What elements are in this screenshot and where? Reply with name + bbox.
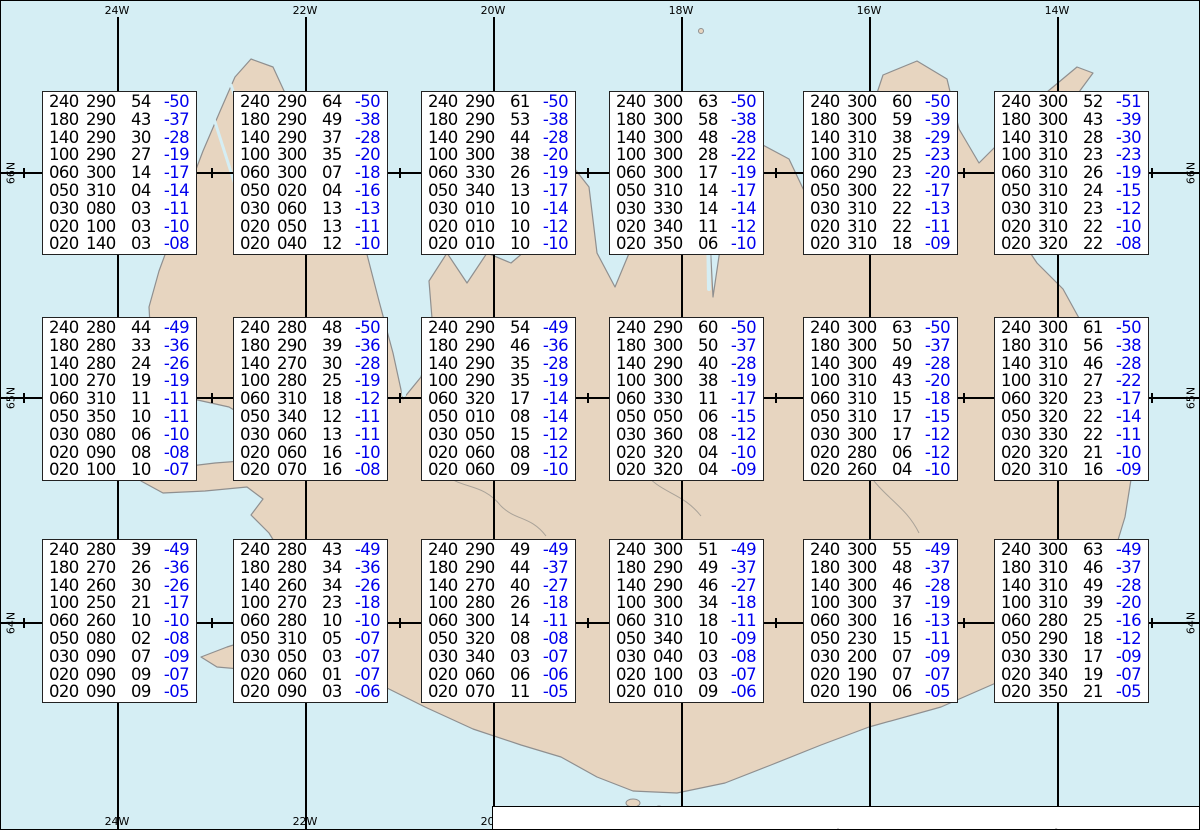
wind-speed-cell: 35 — [510, 372, 541, 389]
wind-speed-cell: 02 — [131, 630, 162, 647]
spot-row: 06028010-10 — [240, 612, 380, 629]
wind-speed-cell: 21 — [1083, 683, 1114, 700]
wind-speed-cell: 17 — [892, 408, 923, 425]
spot-row: 06032017-14 — [428, 390, 568, 407]
wind-speed-cell: 56 — [1083, 337, 1114, 354]
temperature-cell: -12 — [729, 218, 756, 235]
flight-level-cell: 140 — [240, 355, 277, 372]
wind-direction-cell: 100 — [653, 666, 698, 683]
wind-speed-cell: 38 — [510, 146, 541, 163]
wind-speed-cell: 38 — [698, 372, 729, 389]
wind-direction-cell: 290 — [465, 93, 510, 110]
temperature-cell: -38 — [353, 111, 380, 128]
wind-direction-cell: 290 — [653, 559, 698, 576]
flight-level-cell: 060 — [810, 164, 847, 181]
spot-row: 02010010-07 — [49, 461, 189, 478]
wind-speed-cell: 23 — [1083, 390, 1114, 407]
flight-level-cell: 020 — [616, 683, 653, 700]
wind-direction-cell: 300 — [653, 541, 698, 558]
wind-speed-cell: 23 — [322, 594, 353, 611]
spot-row: 14030046-28 — [810, 577, 950, 594]
spot-row: 03005003-07 — [240, 648, 380, 665]
wind-speed-cell: 04 — [698, 444, 729, 461]
flight-level-cell: 180 — [240, 559, 277, 576]
flight-level-cell: 140 — [49, 577, 86, 594]
spot-row: 02019007-07 — [810, 666, 950, 683]
spot-row: 18030050-37 — [616, 337, 756, 354]
wind-direction-cell: 280 — [277, 372, 322, 389]
temperature-cell: -17 — [729, 390, 756, 407]
flight-level-cell: 140 — [616, 577, 653, 594]
temperature-cell: -28 — [353, 355, 380, 372]
spot-row: 24030063-50 — [616, 93, 756, 110]
wind-direction-cell: 080 — [86, 630, 131, 647]
wind-speed-cell: 06 — [698, 408, 729, 425]
spot-row: 02026004-10 — [810, 461, 950, 478]
flight-level-cell: 020 — [428, 666, 465, 683]
temperature-cell: -38 — [729, 111, 756, 128]
temperature-cell: -28 — [162, 129, 189, 146]
spot-row: 24029054-50 — [49, 93, 189, 110]
wind-speed-cell: 46 — [892, 577, 923, 594]
spot-row: 24029064-50 — [240, 93, 380, 110]
temperature-cell: -18 — [353, 164, 380, 181]
temperature-cell: -11 — [162, 390, 189, 407]
spot-row: 03008003-11 — [49, 200, 189, 217]
temperature-cell: -19 — [1114, 164, 1141, 181]
flight-level-cell: 140 — [49, 129, 86, 146]
wind-speed-cell: 59 — [892, 111, 923, 128]
wind-speed-cell: 44 — [131, 319, 162, 336]
flight-level-cell: 240 — [1001, 319, 1038, 336]
spot-row: 24030051-49 — [616, 541, 756, 558]
flight-level-cell: 100 — [810, 146, 847, 163]
wind-speed-cell: 11 — [510, 683, 541, 700]
temperature-cell: -10 — [353, 444, 380, 461]
spot-row: 18030043-39 — [1001, 111, 1141, 128]
wind-speed-cell: 14 — [698, 182, 729, 199]
wind-direction-cell: 060 — [277, 426, 322, 443]
flight-level-cell: 020 — [810, 444, 847, 461]
wind-speed-cell: 09 — [510, 461, 541, 478]
wind-speed-cell: 21 — [131, 594, 162, 611]
flight-level-cell: 180 — [810, 337, 847, 354]
temperature-cell: -09 — [923, 648, 950, 665]
temperature-cell: -19 — [162, 372, 189, 389]
wind-direction-cell: 060 — [465, 666, 510, 683]
spot-row: 14030048-28 — [616, 129, 756, 146]
spot-box: 24029060-5018030050-3714029040-281003003… — [609, 317, 764, 481]
spot-row: 24030061-50 — [1001, 319, 1141, 336]
wind-direction-cell: 330 — [653, 390, 698, 407]
temperature-cell: -11 — [353, 426, 380, 443]
wind-direction-cell: 010 — [465, 218, 510, 235]
wind-speed-cell: 37 — [322, 129, 353, 146]
temperature-cell: -10 — [162, 218, 189, 235]
wind-direction-cell: 310 — [1038, 337, 1083, 354]
temperature-cell: -12 — [1114, 630, 1141, 647]
spot-row: 06032023-17 — [1001, 390, 1141, 407]
spot-row: 18029046-36 — [428, 337, 568, 354]
wind-direction-cell: 350 — [653, 235, 698, 252]
wind-speed-cell: 09 — [131, 683, 162, 700]
temperature-cell: -09 — [162, 648, 189, 665]
flight-level-cell: 140 — [1001, 129, 1038, 146]
spot-box: 24028044-4918028033-3614028024-261002701… — [42, 317, 197, 481]
wind-direction-cell: 050 — [653, 408, 698, 425]
temperature-cell: -10 — [541, 461, 568, 478]
wind-speed-cell: 14 — [131, 164, 162, 181]
wind-direction-cell: 300 — [847, 355, 892, 372]
wind-direction-cell: 290 — [653, 577, 698, 594]
spot-row: 02007011-05 — [428, 683, 568, 700]
flight-level-cell: 240 — [240, 541, 277, 558]
spot-box: 24028048-5018029039-3614027030-281002802… — [233, 317, 388, 481]
flight-level-cell: 030 — [240, 426, 277, 443]
wind-speed-cell: 22 — [1083, 235, 1114, 252]
wind-speed-cell: 10 — [510, 218, 541, 235]
flight-level-cell: 020 — [49, 666, 86, 683]
wind-speed-cell: 19 — [131, 372, 162, 389]
wind-speed-cell: 18 — [1083, 630, 1114, 647]
wind-speed-cell: 18 — [322, 390, 353, 407]
wind-speed-cell: 08 — [510, 630, 541, 647]
flight-level-cell: 100 — [428, 372, 465, 389]
flight-level-cell: 240 — [810, 319, 847, 336]
wind-direction-cell: 300 — [1038, 93, 1083, 110]
wind-speed-cell: 27 — [131, 146, 162, 163]
wind-direction-cell: 200 — [847, 648, 892, 665]
wind-speed-cell: 46 — [698, 577, 729, 594]
wind-direction-cell: 310 — [1038, 355, 1083, 372]
wind-speed-cell: 34 — [322, 559, 353, 576]
temperature-cell: -36 — [353, 559, 380, 576]
flight-level-cell: 240 — [428, 319, 465, 336]
temperature-cell: -28 — [541, 129, 568, 146]
wind-direction-cell: 290 — [86, 146, 131, 163]
wind-direction-cell: 290 — [86, 111, 131, 128]
wind-direction-cell: 270 — [86, 559, 131, 576]
wind-speed-cell: 09 — [131, 666, 162, 683]
spot-row: 02006001-07 — [240, 666, 380, 683]
flight-level-cell: 240 — [428, 93, 465, 110]
spot-row: 10030038-19 — [616, 372, 756, 389]
wind-direction-cell: 340 — [653, 630, 698, 647]
temperature-cell: -30 — [1114, 129, 1141, 146]
wind-speed-cell: 46 — [510, 337, 541, 354]
flight-level-cell: 050 — [810, 182, 847, 199]
wind-speed-cell: 10 — [698, 630, 729, 647]
spot-box: 24030063-4918031046-3714031049-281003103… — [994, 539, 1149, 703]
wind-direction-cell: 100 — [86, 461, 131, 478]
temperature-cell: -08 — [353, 461, 380, 478]
wind-direction-cell: 300 — [1038, 319, 1083, 336]
wind-direction-cell: 270 — [277, 594, 322, 611]
flight-level-cell: 100 — [49, 146, 86, 163]
wind-direction-cell: 060 — [465, 444, 510, 461]
wind-direction-cell: 020 — [277, 182, 322, 199]
wind-direction-cell: 310 — [653, 182, 698, 199]
flight-level-cell: 030 — [810, 426, 847, 443]
flight-level-cell: 020 — [1001, 444, 1038, 461]
flight-level-cell: 140 — [810, 355, 847, 372]
flight-level-cell: 050 — [240, 182, 277, 199]
wind-speed-cell: 37 — [892, 594, 923, 611]
temperature-cell: -22 — [729, 146, 756, 163]
wind-direction-cell: 310 — [86, 390, 131, 407]
temperature-cell: -37 — [1114, 559, 1141, 576]
wind-speed-cell: 07 — [892, 666, 923, 683]
temperature-cell: -38 — [1114, 337, 1141, 354]
temperature-cell: -11 — [729, 612, 756, 629]
wind-speed-cell: 03 — [322, 683, 353, 700]
wind-speed-cell: 30 — [131, 129, 162, 146]
wind-speed-cell: 44 — [510, 129, 541, 146]
temperature-cell: -11 — [353, 408, 380, 425]
spot-row: 14027040-27 — [428, 577, 568, 594]
wind-speed-cell: 39 — [322, 337, 353, 354]
wind-speed-cell: 46 — [1083, 559, 1114, 576]
spot-row: 10028025-19 — [240, 372, 380, 389]
temperature-cell: -16 — [353, 182, 380, 199]
wind-speed-cell: 26 — [510, 164, 541, 181]
wind-direction-cell: 010 — [465, 200, 510, 217]
spot-row: 02034019-07 — [1001, 666, 1141, 683]
temperature-cell: -14 — [541, 200, 568, 217]
flight-level-cell: 180 — [49, 111, 86, 128]
flight-level-cell: 140 — [616, 129, 653, 146]
flight-level-cell: 050 — [428, 408, 465, 425]
flight-level-cell: 240 — [810, 541, 847, 558]
flight-level-cell: 020 — [428, 218, 465, 235]
temperature-cell: -12 — [923, 444, 950, 461]
wind-speed-cell: 24 — [131, 355, 162, 372]
wind-direction-cell: 090 — [86, 683, 131, 700]
spot-row: 14031038-29 — [810, 129, 950, 146]
wind-speed-cell: 43 — [131, 111, 162, 128]
flight-level-cell: 100 — [428, 594, 465, 611]
temperature-cell: -16 — [1114, 612, 1141, 629]
flight-level-cell: 100 — [240, 372, 277, 389]
flight-level-cell: 180 — [240, 111, 277, 128]
temperature-cell: -12 — [1114, 200, 1141, 217]
flight-level-cell: 050 — [616, 408, 653, 425]
spot-row: 18029044-37 — [428, 559, 568, 576]
temperature-cell: -28 — [541, 355, 568, 372]
wind-direction-cell: 320 — [1038, 235, 1083, 252]
flight-level-cell: 020 — [1001, 218, 1038, 235]
spot-row: 02010003-10 — [49, 218, 189, 235]
temperature-cell: -08 — [729, 648, 756, 665]
flight-level-cell: 020 — [240, 666, 277, 683]
temperature-cell: -14 — [729, 200, 756, 217]
flight-level-cell: 060 — [49, 612, 86, 629]
wind-speed-cell: 13 — [510, 182, 541, 199]
flight-level-cell: 050 — [49, 630, 86, 647]
wind-speed-cell: 54 — [510, 319, 541, 336]
spot-row: 10027023-18 — [240, 594, 380, 611]
wind-direction-cell: 290 — [86, 93, 131, 110]
temperature-cell: -37 — [162, 111, 189, 128]
wind-direction-cell: 330 — [465, 164, 510, 181]
wind-direction-cell: 320 — [1038, 408, 1083, 425]
flight-level-cell: 030 — [428, 200, 465, 217]
flight-level-cell: 060 — [810, 612, 847, 629]
wind-speed-cell: 54 — [131, 93, 162, 110]
wind-direction-cell: 310 — [847, 218, 892, 235]
wind-direction-cell: 280 — [86, 319, 131, 336]
temperature-cell: -49 — [162, 541, 189, 558]
flight-level-cell: 180 — [49, 559, 86, 576]
wind-direction-cell: 290 — [653, 319, 698, 336]
temperature-cell: -36 — [162, 337, 189, 354]
spot-row: 10028026-18 — [428, 594, 568, 611]
spot-row: 03005015-12 — [428, 426, 568, 443]
spot-row: 02006008-12 — [428, 444, 568, 461]
temperature-cell: -09 — [1114, 648, 1141, 665]
spot-row: 02032021-10 — [1001, 444, 1141, 461]
wind-direction-cell: 190 — [847, 683, 892, 700]
spot-row: 05002004-16 — [240, 182, 380, 199]
temperature-cell: -13 — [353, 200, 380, 217]
wind-speed-cell: 33 — [131, 337, 162, 354]
flight-level-cell: 020 — [49, 461, 86, 478]
wind-speed-cell: 46 — [1083, 355, 1114, 372]
flight-level-cell: 180 — [616, 111, 653, 128]
wind-speed-cell: 10 — [131, 461, 162, 478]
flight-level-cell: 100 — [616, 594, 653, 611]
wind-direction-cell: 310 — [1038, 218, 1083, 235]
flight-level-cell: 020 — [240, 218, 277, 235]
spot-row: 02009009-07 — [49, 666, 189, 683]
flight-level-cell: 030 — [428, 426, 465, 443]
wind-speed-cell: 27 — [1083, 372, 1114, 389]
flight-level-cell: 020 — [428, 683, 465, 700]
wind-speed-cell: 07 — [322, 164, 353, 181]
temperature-cell: -23 — [1114, 146, 1141, 163]
spot-row: 14026030-26 — [49, 577, 189, 594]
wind-speed-cell: 11 — [131, 390, 162, 407]
temperature-cell: -49 — [923, 541, 950, 558]
wind-direction-cell: 300 — [847, 577, 892, 594]
flight-level-cell: 020 — [616, 666, 653, 683]
wind-speed-cell: 49 — [322, 111, 353, 128]
flight-level-cell: 060 — [240, 612, 277, 629]
flight-level-cell: 030 — [810, 200, 847, 217]
flight-level-cell: 030 — [1001, 648, 1038, 665]
spot-row: 24029061-50 — [428, 93, 568, 110]
spot-row: 10031043-20 — [810, 372, 950, 389]
spot-row: 03020007-09 — [810, 648, 950, 665]
flight-level-cell: 020 — [49, 444, 86, 461]
temperature-cell: -49 — [162, 319, 189, 336]
spot-row: 18031046-37 — [1001, 559, 1141, 576]
wind-speed-cell: 25 — [1083, 612, 1114, 629]
wind-direction-cell: 340 — [277, 408, 322, 425]
wind-speed-cell: 06 — [892, 683, 923, 700]
wind-speed-cell: 04 — [131, 182, 162, 199]
temperature-cell: -28 — [729, 129, 756, 146]
wind-speed-cell: 22 — [892, 200, 923, 217]
temperature-cell: -14 — [541, 408, 568, 425]
temperature-cell: -20 — [923, 164, 950, 181]
wind-speed-cell: 51 — [698, 541, 729, 558]
spot-row: 05001008-14 — [428, 408, 568, 425]
temperature-cell: -05 — [162, 683, 189, 700]
spot-row: 24030052-51 — [1001, 93, 1141, 110]
flight-level-cell: 060 — [240, 164, 277, 181]
spot-row: 02014003-08 — [49, 235, 189, 252]
spot-row: 03006013-13 — [240, 200, 380, 217]
wind-direction-cell: 320 — [465, 390, 510, 407]
wind-speed-cell: 11 — [698, 218, 729, 235]
wind-speed-cell: 49 — [1083, 577, 1114, 594]
temperature-cell: -51 — [1114, 93, 1141, 110]
flight-level-cell: 240 — [240, 319, 277, 336]
flight-level-cell: 100 — [428, 146, 465, 163]
temperature-cell: -11 — [923, 630, 950, 647]
wind-speed-cell: 25 — [892, 146, 923, 163]
spot-row: 24029049-49 — [428, 541, 568, 558]
flight-level-cell: 180 — [428, 111, 465, 128]
wind-speed-cell: 23 — [892, 164, 923, 181]
spot-row: 18029043-37 — [49, 111, 189, 128]
spot-row: 05035010-11 — [49, 408, 189, 425]
wind-direction-cell: 300 — [847, 337, 892, 354]
wind-direction-cell: 340 — [653, 218, 698, 235]
spot-row: 06028025-16 — [1001, 612, 1141, 629]
wind-speed-cell: 08 — [698, 426, 729, 443]
spot-row: 14027030-28 — [240, 355, 380, 372]
spot-box: 24030063-5018030050-3714030049-281003104… — [803, 317, 958, 481]
flight-level-cell: 030 — [428, 648, 465, 665]
spot-row: 14029030-28 — [49, 129, 189, 146]
spot-row: 06030007-18 — [240, 164, 380, 181]
flight-level-cell: 060 — [1001, 390, 1038, 407]
spot-row: 02001009-06 — [616, 683, 756, 700]
temperature-cell: -26 — [162, 355, 189, 372]
wind-speed-cell: 08 — [510, 408, 541, 425]
wind-direction-cell: 310 — [277, 630, 322, 647]
flight-level-cell: 020 — [616, 461, 653, 478]
spot-row: 02035021-05 — [1001, 683, 1141, 700]
wind-speed-cell: 35 — [322, 146, 353, 163]
temperature-cell: -50 — [923, 319, 950, 336]
wind-speed-cell: 61 — [1083, 319, 1114, 336]
wind-direction-cell: 320 — [653, 461, 698, 478]
flight-level-cell: 100 — [616, 146, 653, 163]
spot-row: 03030017-12 — [810, 426, 950, 443]
temperature-cell: -10 — [1114, 444, 1141, 461]
wind-direction-cell: 310 — [1038, 182, 1083, 199]
spot-row: 05005006-15 — [616, 408, 756, 425]
temperature-cell: -11 — [923, 218, 950, 235]
flight-level-cell: 240 — [240, 93, 277, 110]
wind-speed-cell: 48 — [892, 559, 923, 576]
spot-row: 02001010-10 — [428, 235, 568, 252]
wind-speed-cell: 16 — [1083, 461, 1114, 478]
flight-level-cell: 050 — [428, 182, 465, 199]
spot-row: 10031025-23 — [810, 146, 950, 163]
spot-row: 02028006-12 — [810, 444, 950, 461]
spot-row: 05032022-14 — [1001, 408, 1141, 425]
spot-row: 03009007-09 — [49, 648, 189, 665]
wind-speed-cell: 22 — [1083, 426, 1114, 443]
flight-level-cell: 180 — [810, 559, 847, 576]
temperature-cell: -50 — [162, 93, 189, 110]
wind-direction-cell: 280 — [86, 337, 131, 354]
spot-row: 14030049-28 — [810, 355, 950, 372]
